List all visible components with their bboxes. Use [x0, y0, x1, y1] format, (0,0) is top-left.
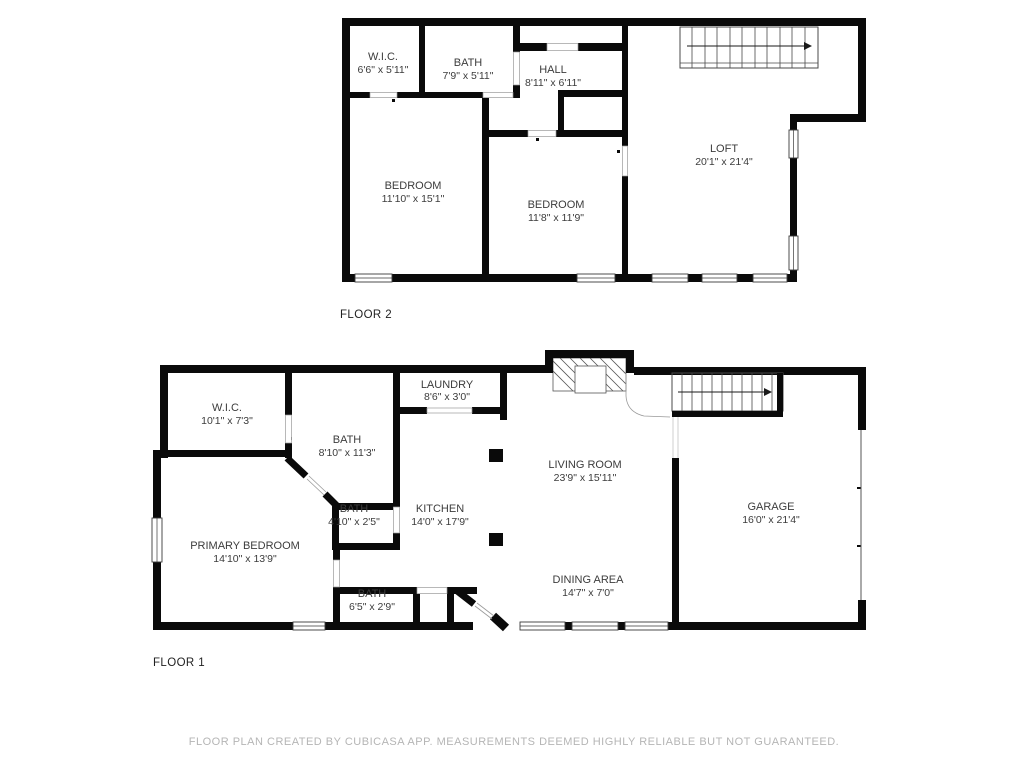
svg-text:W.I.C.: W.I.C. [212, 402, 242, 414]
floor2-walls [342, 18, 866, 282]
svg-text:LIVING ROOM: LIVING ROOM [548, 459, 621, 471]
room-label-wic-1: W.I.C.10'1" x 7'3" [201, 402, 253, 427]
room-label-wic-2: W.I.C.6'6" x 5'11" [358, 51, 409, 76]
floor-plan-page: W.I.C.6'6" x 5'11" BATH7'9" x 5'11" HALL… [0, 0, 1024, 768]
footer-disclaimer: FLOOR PLAN CREATED BY CUBICASA APP. MEAS… [189, 736, 839, 748]
room-label-bath-main: BATH8'10" x 11'3" [319, 434, 376, 459]
svg-text:KITCHEN: KITCHEN [416, 503, 464, 515]
post-column [489, 449, 503, 462]
floor2-room-labels: W.I.C.6'6" x 5'11" BATH7'9" x 5'11" HALL… [358, 51, 754, 224]
svg-text:16'0" x 21'4": 16'0" x 21'4" [742, 514, 800, 526]
post-column [489, 533, 503, 546]
svg-text:BATH: BATH [454, 57, 483, 69]
svg-text:6'5" x 2'9": 6'5" x 2'9" [349, 601, 395, 613]
floor2-plan: W.I.C.6'6" x 5'11" BATH7'9" x 5'11" HALL… [340, 18, 866, 321]
svg-text:11'8" x 11'9": 11'8" x 11'9" [528, 212, 584, 224]
svg-text:8'11" x 6'11": 8'11" x 6'11" [525, 77, 581, 89]
svg-text:LAUNDRY: LAUNDRY [421, 379, 474, 391]
svg-text:14'7" x 7'0": 14'7" x 7'0" [562, 587, 614, 599]
room-label-hall: HALL8'11" x 6'11" [525, 64, 581, 89]
room-label-kitchen: KITCHEN14'0" x 17'9" [411, 503, 469, 528]
floor1-label: FLOOR 1 [153, 657, 205, 669]
room-label-garage: GARAGE16'0" x 21'4" [742, 501, 800, 526]
room-label-living-room: LIVING ROOM23'9" x 15'11" [548, 459, 621, 484]
svg-text:W.I.C.: W.I.C. [368, 51, 398, 63]
svg-text:GARAGE: GARAGE [747, 501, 794, 513]
floor2-stairs-icon [680, 27, 818, 68]
svg-text:14'0" x 17'9": 14'0" x 17'9" [411, 516, 469, 528]
floor2-door-openings [370, 44, 628, 177]
svg-text:8'10" x 11'3": 8'10" x 11'3" [319, 447, 376, 459]
svg-text:8'6" x 3'0": 8'6" x 3'0" [424, 391, 470, 403]
room-label-loft: LOFT20'1" x 21'4" [695, 143, 753, 168]
svg-text:HALL: HALL [539, 64, 567, 76]
floor1-stairs-icon [626, 373, 783, 417]
svg-text:10'1" x 7'3": 10'1" x 7'3" [201, 415, 253, 427]
svg-text:DINING AREA: DINING AREA [553, 574, 625, 586]
svg-text:BATH: BATH [333, 434, 362, 446]
svg-text:4'10" x 2'5": 4'10" x 2'5" [328, 516, 380, 528]
room-label-bath-2: BATH7'9" x 5'11" [443, 57, 494, 82]
floor1-plan: W.I.C.10'1" x 7'3" LAUNDRY8'6" x 3'0" BA… [152, 350, 866, 669]
floor-plan-canvas: W.I.C.6'6" x 5'11" BATH7'9" x 5'11" HALL… [0, 0, 1024, 768]
svg-text:6'6" x 5'11": 6'6" x 5'11" [358, 64, 409, 76]
room-label-dining-area: DINING AREA14'7" x 7'0" [553, 574, 625, 599]
room-label-primary-bedroom: PRIMARY BEDROOM14'10" x 13'9" [190, 540, 300, 565]
svg-text:BATH: BATH [340, 503, 369, 515]
room-label-bedroom-1: BEDROOM11'10" x 15'1" [382, 180, 445, 205]
room-label-laundry: LAUNDRY8'6" x 3'0" [421, 379, 474, 403]
svg-text:LOFT: LOFT [710, 143, 738, 155]
under-stair-outline [626, 373, 670, 417]
svg-text:BEDROOM: BEDROOM [385, 180, 442, 192]
svg-text:20'1" x 21'4": 20'1" x 21'4" [695, 156, 753, 168]
svg-text:7'9" x 5'11": 7'9" x 5'11" [443, 70, 494, 82]
svg-text:23'9" x 15'11": 23'9" x 15'11" [554, 472, 617, 484]
floor2-label: FLOOR 2 [340, 309, 392, 321]
svg-text:14'10" x 13'9": 14'10" x 13'9" [213, 553, 277, 565]
svg-text:11'10" x 15'1": 11'10" x 15'1" [382, 193, 445, 205]
svg-text:PRIMARY BEDROOM: PRIMARY BEDROOM [190, 540, 300, 552]
svg-text:BATH: BATH [358, 588, 387, 600]
svg-text:BEDROOM: BEDROOM [528, 199, 585, 211]
room-label-bedroom-2: BEDROOM11'8" x 11'9" [528, 199, 585, 224]
